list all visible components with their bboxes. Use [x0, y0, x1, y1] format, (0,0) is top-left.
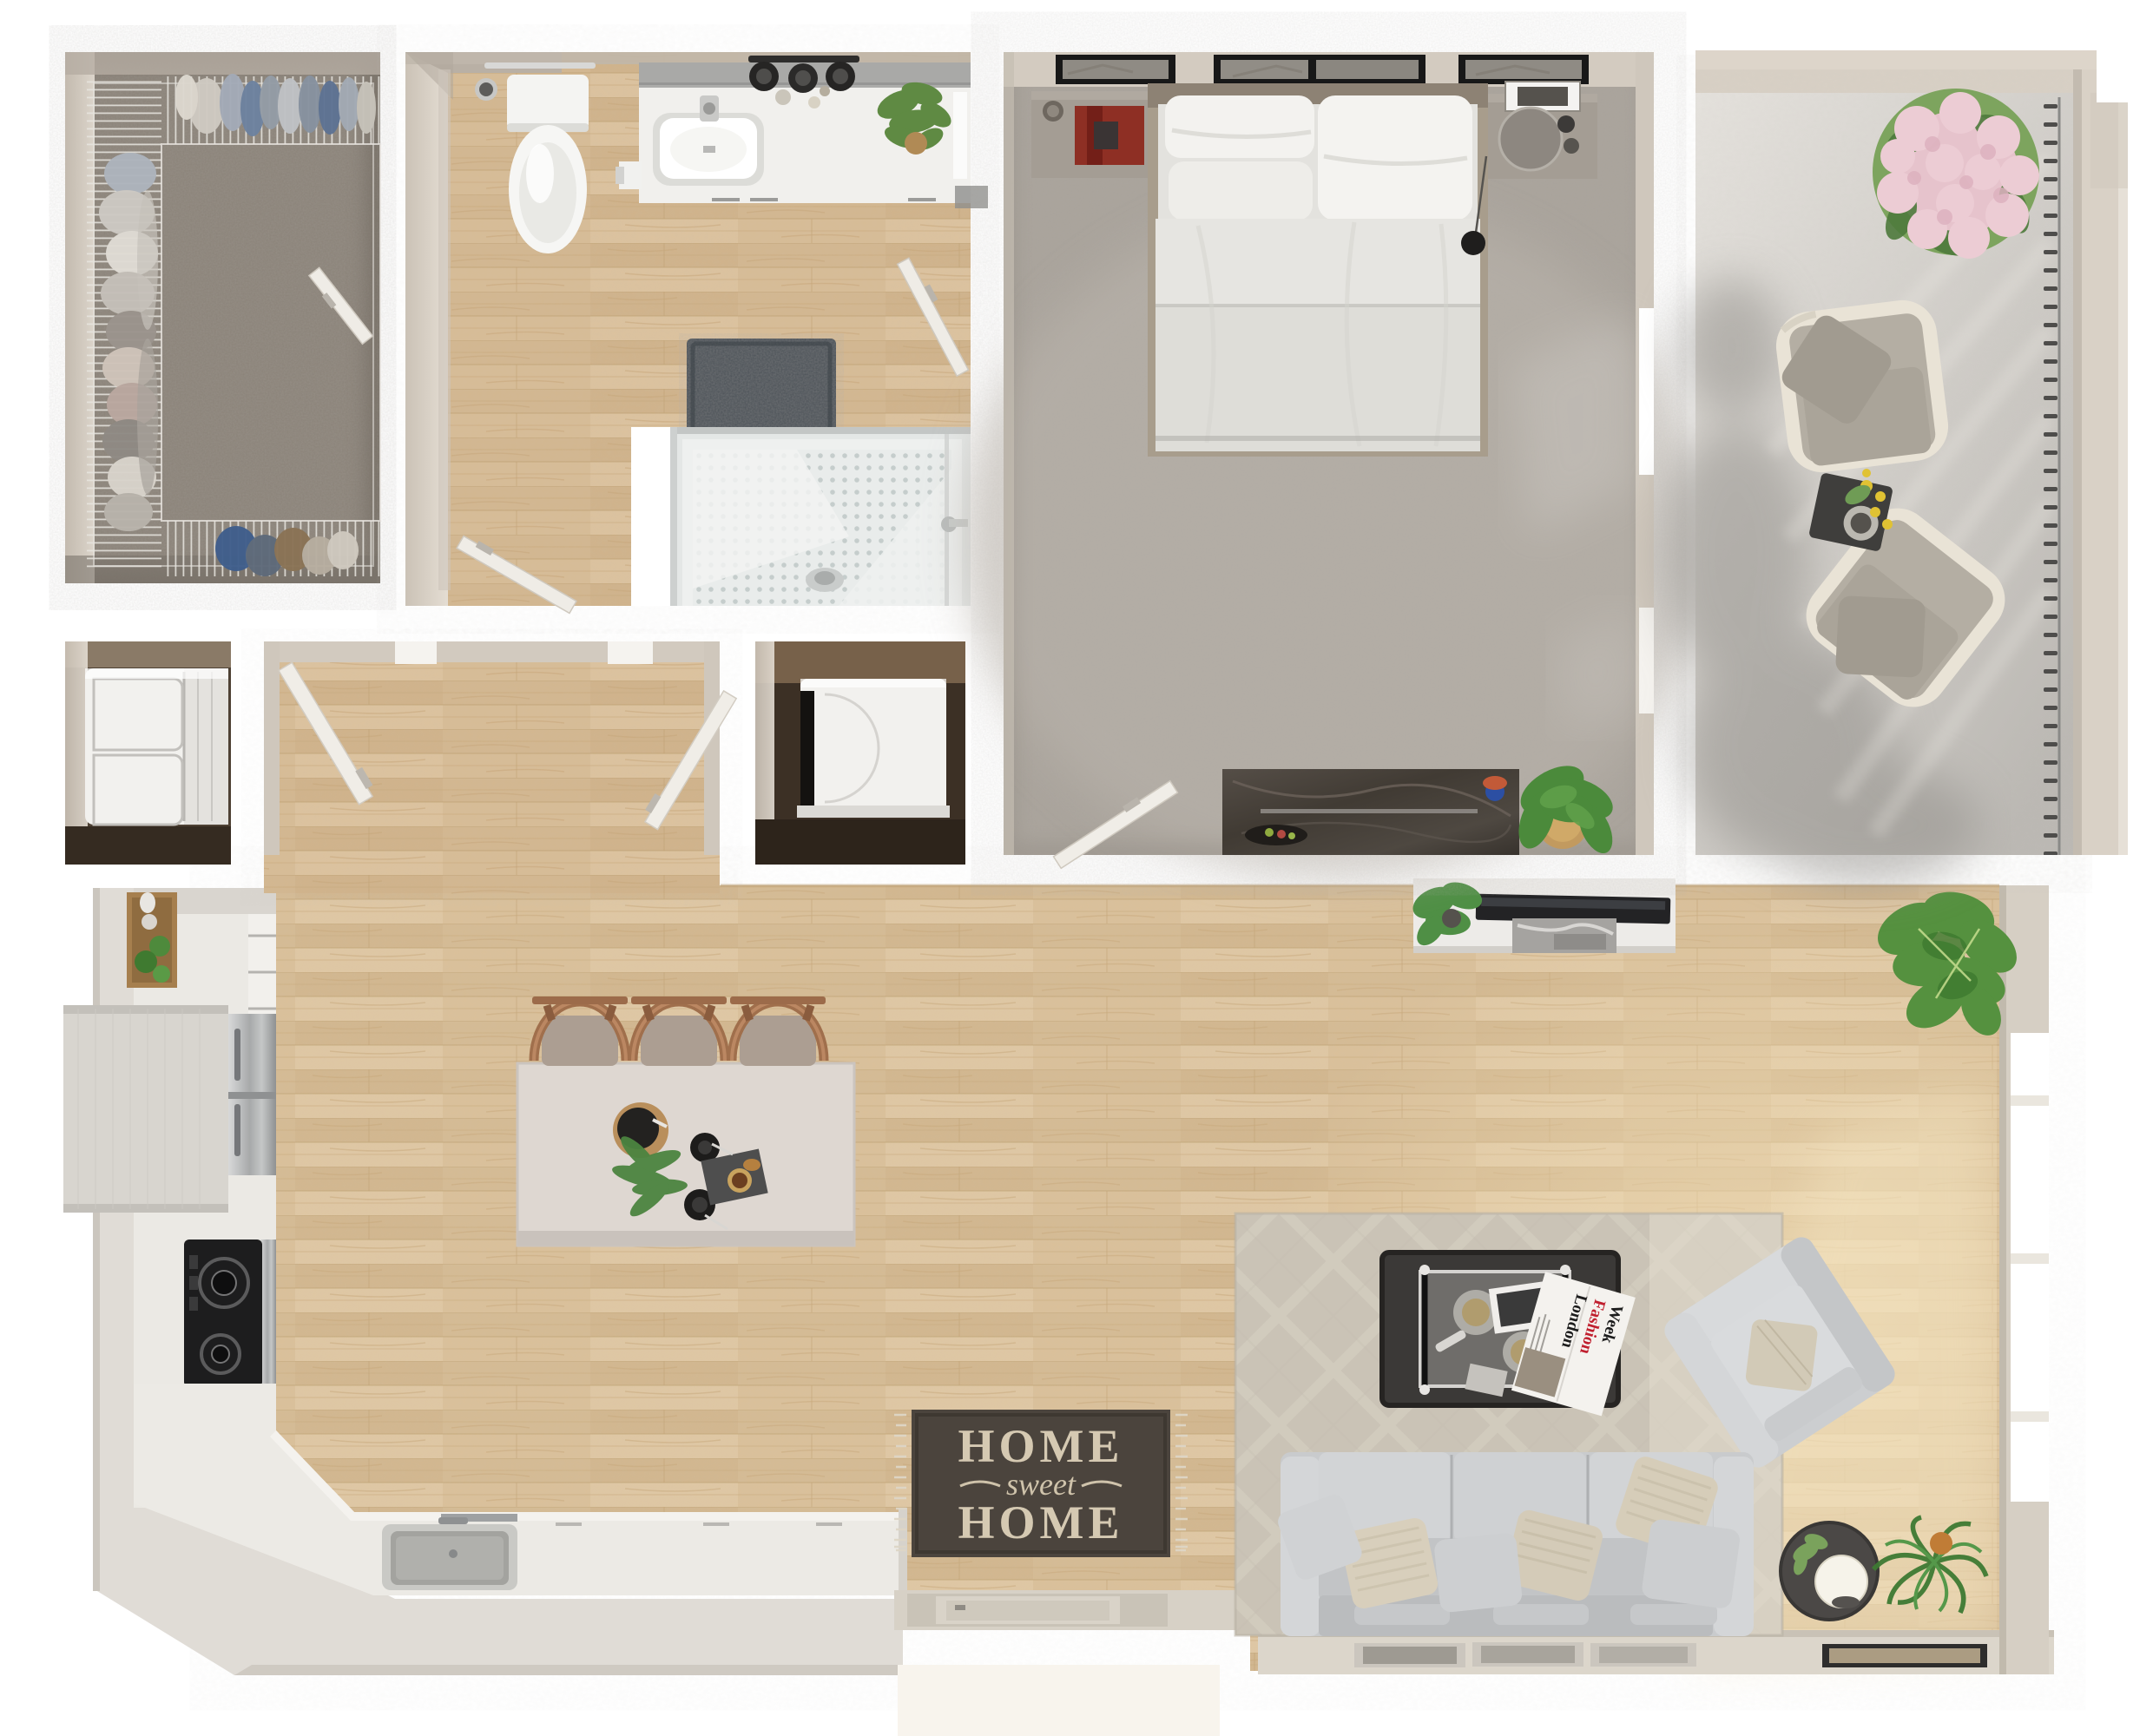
svg-text:HOME: HOME: [958, 1496, 1124, 1549]
svg-text:HOME: HOME: [958, 1420, 1124, 1472]
